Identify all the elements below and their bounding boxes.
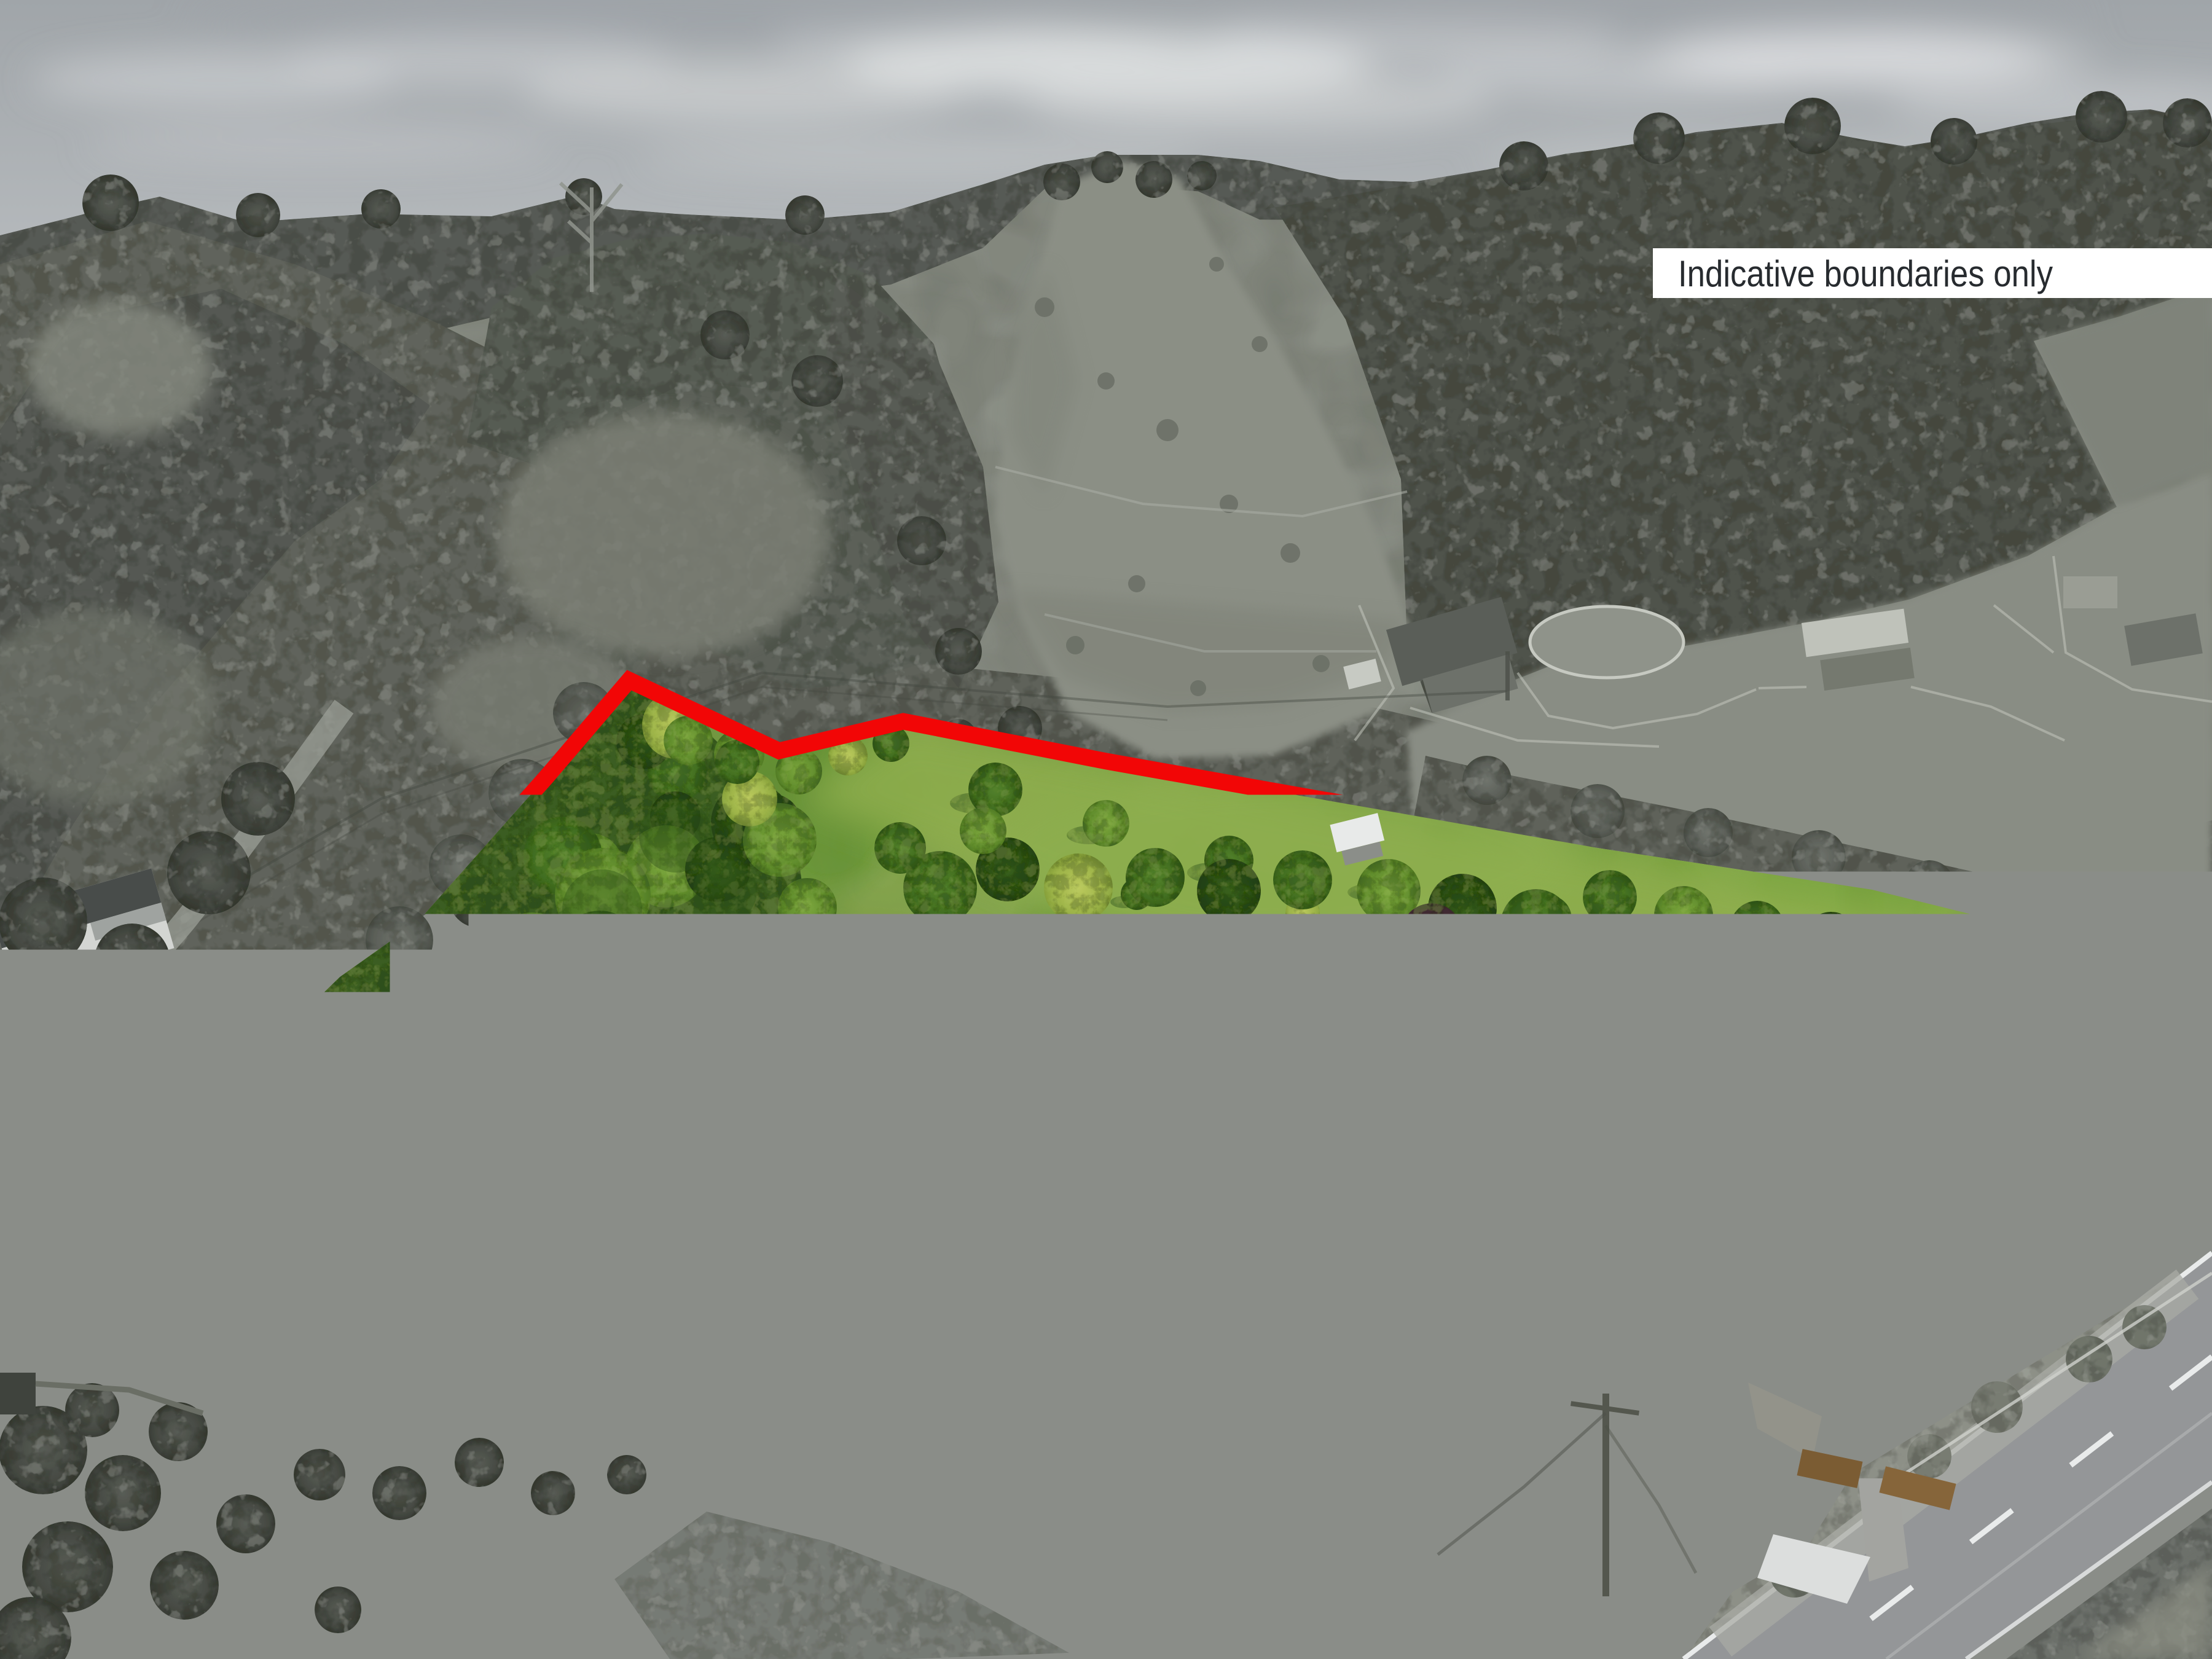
svg-text:Indicative boundaries only: Indicative boundaries only: [1678, 253, 2053, 294]
svg-text:Boundary Indicative Only: Boundary Indicative Only: [1317, 1410, 1593, 1441]
